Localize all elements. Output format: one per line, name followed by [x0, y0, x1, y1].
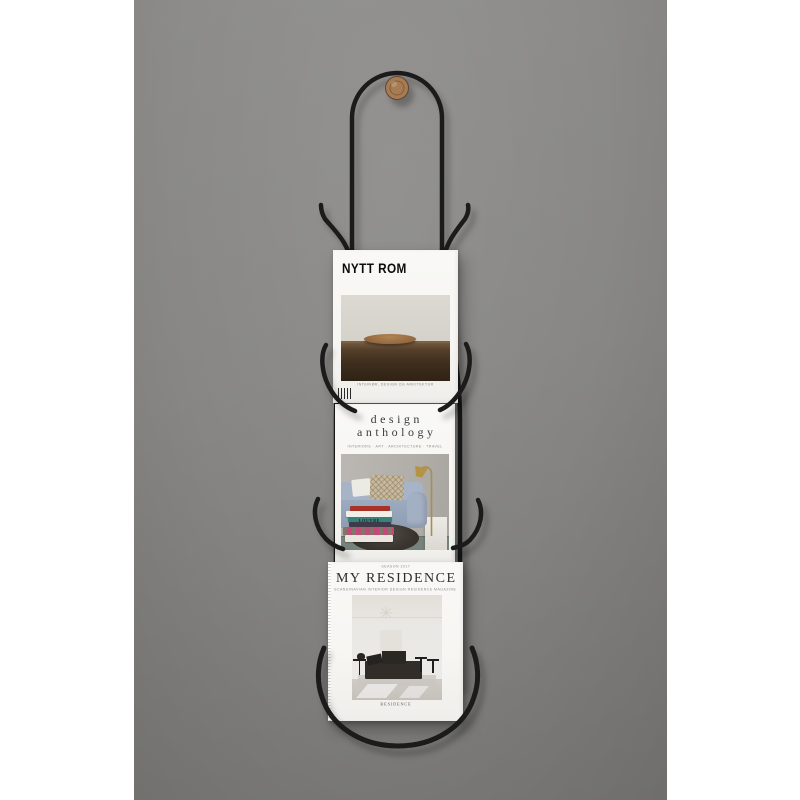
chandelier-icon: ✳ [379, 605, 393, 622]
book-spine [343, 527, 394, 535]
black-stool [415, 657, 427, 672]
product-photo: NYTT ROM INTERIØR, DESIGN OG ARKITEKTUR … [134, 0, 667, 800]
patterned-cushion [370, 474, 405, 500]
publisher-logo: RESIDENCE [380, 702, 411, 707]
cover-photo-living-room: LOUVRE [341, 454, 449, 550]
magazine-title: NYTT ROM [342, 260, 407, 276]
wooden-knob-highlight [391, 81, 397, 87]
white-side-table [425, 517, 447, 550]
wooden-knob-ring [390, 81, 404, 95]
publisher-logo-row: RESIDENCE [328, 702, 463, 710]
table-leg [359, 661, 361, 675]
black-stool [427, 659, 439, 673]
book-spine-louvre: LOUVRE [346, 511, 392, 517]
cover-subtitle-row: SCANDINAVIAN INTERIOR DESIGN RESIDENCE M… [328, 588, 463, 595]
stool-leg [420, 659, 422, 672]
magazine-title-line2: anthology [335, 425, 455, 440]
wooden-table [341, 341, 450, 381]
wooden-knob [386, 77, 409, 100]
magazine-title: MY RESIDENCE [328, 571, 463, 587]
cover-categories: INTERIORS · ART · ARCHITECTURE · TRAVEL [347, 445, 442, 449]
cover-photo-wooden-bowl [341, 295, 450, 381]
sculpture [357, 653, 365, 659]
magazine-nytt-rom: NYTT ROM INTERIØR, DESIGN OG ARKITEKTUR [333, 250, 458, 403]
cover-eyebrow: SEASON 2017 [381, 565, 410, 569]
magazine-my-residence: SEASON 2017 MY RESIDENCE SCANDINAVIAN IN… [328, 562, 463, 721]
magazine-design-anthology: design anthology INTERIORS · ART · ARCHI… [335, 404, 455, 564]
lamp-shade [413, 466, 428, 478]
book-spine-text: LOUVRE [358, 519, 379, 522]
black-side-table [353, 659, 366, 675]
cover-categories-row: INTERIORS · ART · ARCHITECTURE · TRAVEL [335, 445, 455, 452]
wire-hook-mid2-right [453, 500, 481, 548]
cover-photo-white-room: ✳ [352, 595, 442, 700]
wire-arch [352, 73, 442, 253]
book-spine [345, 535, 393, 542]
sofa-arm [407, 492, 427, 526]
cover-tagline: INTERIØR, DESIGN OG ARKITEKTUR [357, 383, 433, 387]
stool-leg [432, 661, 434, 673]
ceiling-line [352, 617, 442, 618]
barcode [338, 388, 353, 399]
wooden-bowl [364, 334, 416, 344]
cover-subtitle: SCANDINAVIAN INTERIOR DESIGN RESIDENCE M… [334, 588, 456, 592]
dark-sofa-back [382, 651, 406, 664]
book-stack: LOUVRE [343, 506, 397, 542]
